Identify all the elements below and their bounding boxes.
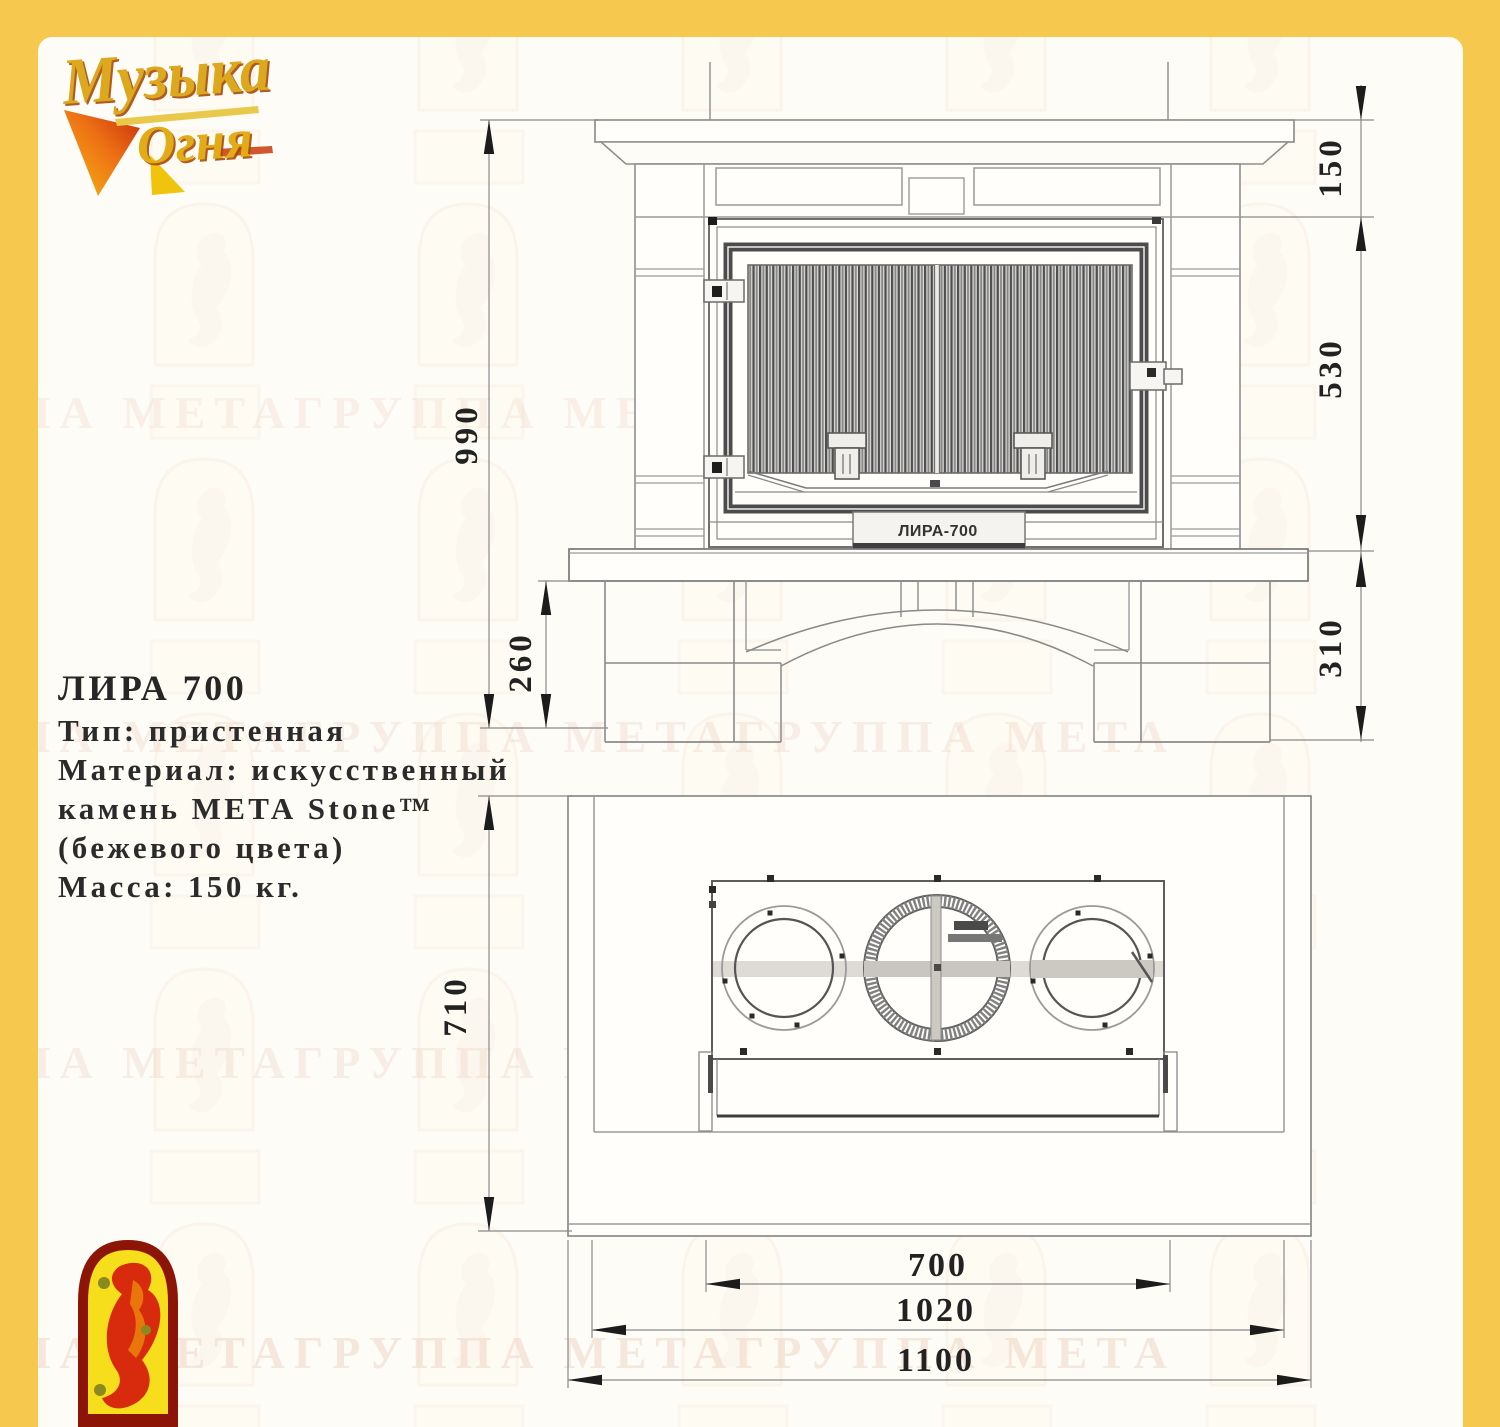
svg-text:ЛИРА-700: ЛИРА-700	[898, 523, 978, 540]
svg-text:1100: 1100	[897, 1342, 975, 1379]
svg-text:700: 700	[908, 1247, 968, 1284]
svg-text:Материал: искусственный: Материал: искусственный	[58, 752, 510, 787]
svg-text:Тип: пристенная: Тип: пристенная	[58, 713, 346, 748]
svg-text:Огня: Огня	[135, 108, 255, 176]
svg-text:1020: 1020	[896, 1292, 976, 1329]
svg-text:Масса: 150 кг.: Масса: 150 кг.	[58, 869, 302, 904]
svg-text:260: 260	[503, 631, 539, 693]
svg-text:530: 530	[1313, 337, 1349, 399]
svg-text:камень МЕТА Stone™: камень МЕТА Stone™	[58, 791, 433, 826]
svg-text:310: 310	[1313, 616, 1349, 678]
svg-text:(бежевого цвета): (бежевого цвета)	[58, 830, 346, 865]
svg-text:990: 990	[449, 403, 485, 465]
svg-text:ЛИРА 700: ЛИРА 700	[58, 668, 247, 708]
svg-text:710: 710	[438, 975, 474, 1037]
svg-text:Музыка: Музыка	[59, 32, 273, 119]
svg-text:150: 150	[1313, 136, 1349, 198]
